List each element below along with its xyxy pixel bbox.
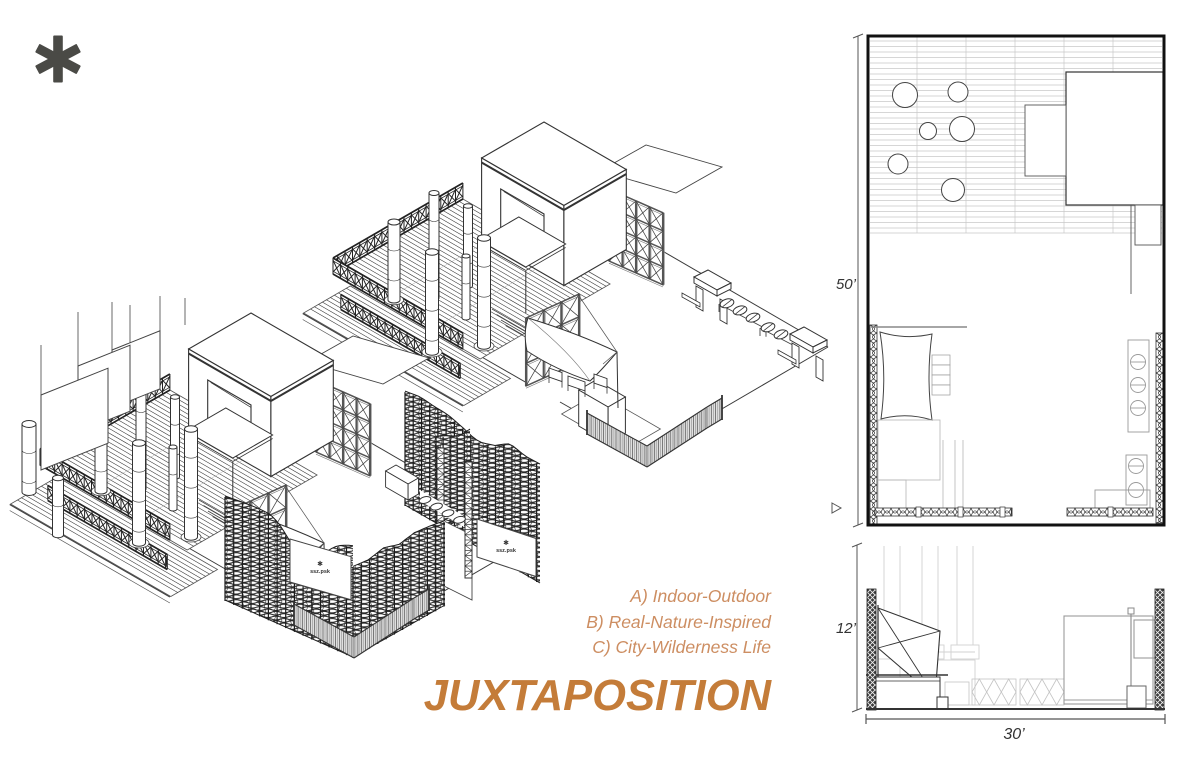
svg-text:A) Indoor-Outdoor: A) Indoor-Outdoor	[629, 586, 772, 606]
svg-text:JUXTAPOSITION: JUXTAPOSITION	[424, 672, 773, 720]
svg-text:✱: ✱	[503, 539, 509, 547]
svg-text:ssz.psk: ssz.psk	[310, 569, 331, 575]
svg-text:✱: ✱	[317, 560, 323, 568]
svg-text:B) Real-Nature-Inspired: B) Real-Nature-Inspired	[586, 612, 772, 632]
svg-text:50’: 50’	[836, 276, 857, 293]
svg-text:12’: 12’	[836, 620, 857, 637]
svg-text:C) City-Wilderness Life: C) City-Wilderness Life	[592, 637, 771, 657]
svg-text:30’: 30’	[1003, 726, 1025, 743]
svg-text:ssz.psk: ssz.psk	[496, 548, 517, 554]
